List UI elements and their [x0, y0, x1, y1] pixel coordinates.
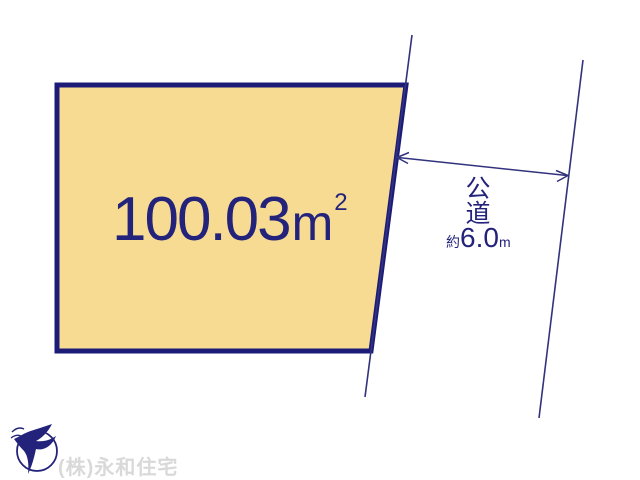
road-name-label: 公 道 [463, 177, 493, 227]
plot-area-label: 100.03 m 2 [112, 195, 362, 251]
plot-area-value: 100.03 [112, 195, 290, 245]
plot-area-exponent: 2 [334, 178, 347, 228]
road-width-approx-prefix: 約 [446, 232, 460, 252]
land-plot-diagram: 100.03 m 2 公 道 約 6.0 m (株)永和住宅 [0, 0, 640, 480]
road-name-char-1: 公 [463, 177, 493, 202]
road-width-label: 約 6.0 m [446, 222, 511, 250]
road-width-unit: m [499, 234, 511, 250]
road-width-value: 6.0 [460, 222, 499, 254]
plot-area-unit: m [292, 198, 334, 248]
road-right-boundary-line [539, 60, 583, 418]
company-name-text: (株)永和住宅 [58, 451, 178, 475]
arrowhead-right-icon [556, 171, 568, 182]
